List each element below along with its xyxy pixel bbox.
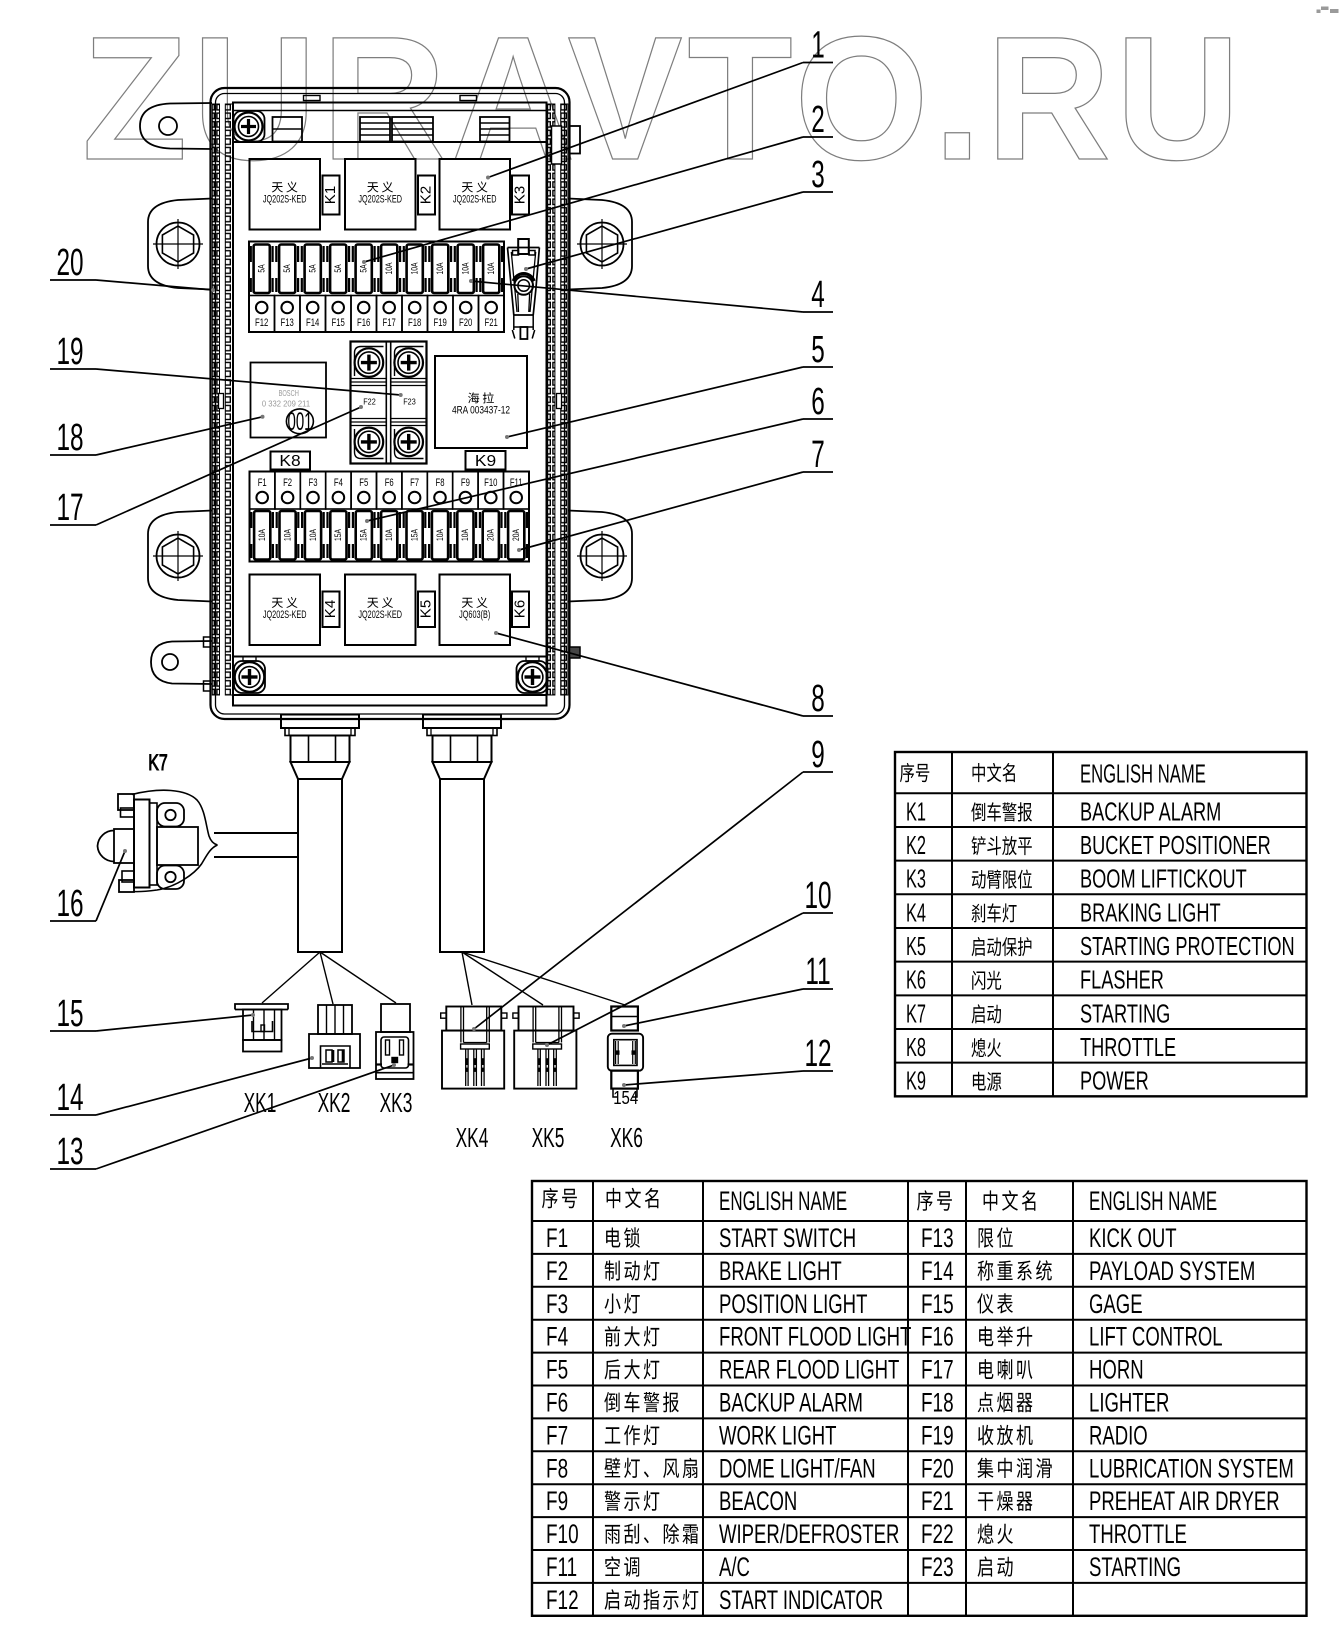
svg-text:F5: F5 — [359, 477, 368, 489]
svg-text:PAYLOAD SYSTEM: PAYLOAD SYSTEM — [1089, 1256, 1255, 1286]
svg-text:F10: F10 — [484, 477, 497, 489]
svg-text:XK4: XK4 — [456, 1122, 489, 1153]
svg-text:GAGE: GAGE — [1089, 1289, 1143, 1319]
svg-text:LIGHTER: LIGHTER — [1089, 1388, 1169, 1418]
svg-text:KICK OUT: KICK OUT — [1089, 1223, 1177, 1253]
svg-text:JQ603(B): JQ603(B) — [459, 609, 490, 621]
svg-text:BOSCH: BOSCH — [279, 388, 299, 398]
svg-text:F8: F8 — [436, 477, 445, 489]
svg-text:WIPER/DEFROSTER: WIPER/DEFROSTER — [719, 1519, 899, 1549]
svg-text:BACKUP ALARM: BACKUP ALARM — [719, 1388, 863, 1418]
svg-text:F20: F20 — [921, 1453, 954, 1483]
svg-text:K8: K8 — [279, 453, 300, 470]
svg-text:ENGLISH NAME: ENGLISH NAME — [719, 1186, 847, 1216]
svg-text:F13: F13 — [921, 1223, 954, 1253]
svg-text:15A: 15A — [409, 529, 419, 541]
svg-text:10A: 10A — [461, 263, 471, 275]
svg-text:F17: F17 — [921, 1355, 954, 1385]
svg-text:K5: K5 — [906, 931, 926, 961]
svg-text:4RA 003437-12: 4RA 003437-12 — [452, 405, 510, 417]
svg-text:F21: F21 — [485, 317, 498, 329]
svg-text:5A: 5A — [257, 264, 267, 272]
svg-text:K1: K1 — [322, 186, 339, 204]
svg-text:10A: 10A — [282, 529, 292, 541]
svg-text:F17: F17 — [383, 317, 396, 329]
svg-text:BRAKE LIGHT: BRAKE LIGHT — [719, 1256, 842, 1286]
svg-text:154: 154 — [613, 1088, 638, 1108]
svg-text:19: 19 — [56, 331, 83, 373]
svg-text:LIFT CONTROL: LIFT CONTROL — [1089, 1322, 1223, 1352]
svg-text:10A: 10A — [435, 263, 445, 275]
svg-text:K3: K3 — [906, 864, 926, 894]
svg-text:F14: F14 — [921, 1256, 954, 1286]
svg-text:F3: F3 — [309, 477, 318, 489]
svg-text:15A: 15A — [359, 529, 369, 541]
svg-text:F16: F16 — [921, 1322, 954, 1352]
svg-text:F19: F19 — [921, 1420, 954, 1450]
svg-text:11: 11 — [805, 951, 830, 993]
svg-text:FLASHER: FLASHER — [1080, 965, 1164, 995]
svg-text:DOME LIGHT/FAN: DOME LIGHT/FAN — [719, 1453, 876, 1483]
svg-text:F5: F5 — [546, 1355, 568, 1385]
svg-text:K4: K4 — [906, 897, 926, 927]
svg-text:BEACON: BEACON — [719, 1486, 797, 1516]
svg-text:JQ202S-KED: JQ202S-KED — [453, 194, 497, 206]
svg-text:K5: K5 — [418, 600, 435, 618]
svg-text:9: 9 — [811, 734, 825, 776]
svg-text:4: 4 — [811, 274, 825, 316]
svg-text:BOOM LIFTICKOUT: BOOM LIFTICKOUT — [1080, 864, 1247, 894]
svg-text:F12: F12 — [546, 1585, 579, 1615]
svg-text:K1: K1 — [906, 796, 926, 826]
svg-text:F4: F4 — [334, 477, 343, 489]
svg-text:10A: 10A — [410, 263, 420, 275]
svg-text:F14: F14 — [306, 317, 319, 329]
svg-text:F21: F21 — [921, 1486, 954, 1516]
svg-text:FRONT FLOOD LIGHT: FRONT FLOOD LIGHT — [719, 1322, 911, 1352]
svg-text:F2: F2 — [546, 1256, 568, 1286]
svg-text:2: 2 — [811, 99, 825, 141]
svg-text:10: 10 — [804, 875, 831, 917]
svg-text:XK3: XK3 — [380, 1087, 413, 1118]
svg-text:STARTING: STARTING — [1089, 1552, 1181, 1582]
svg-text:3: 3 — [811, 154, 825, 196]
svg-text:STARTING: STARTING — [1080, 998, 1170, 1028]
svg-text:10A: 10A — [486, 263, 496, 275]
svg-text:20: 20 — [56, 242, 83, 284]
svg-text:5A: 5A — [359, 264, 369, 272]
svg-text:K6: K6 — [512, 600, 529, 618]
svg-text:F18: F18 — [408, 317, 421, 329]
svg-text:REAR FLOOD LIGHT: REAR FLOOD LIGHT — [719, 1355, 899, 1385]
svg-text:10A: 10A — [435, 529, 445, 541]
svg-text:STARTING PROTECTION: STARTING PROTECTION — [1080, 931, 1295, 961]
svg-text:10A: 10A — [384, 529, 394, 541]
svg-text:K3: K3 — [512, 186, 529, 204]
svg-text:F15: F15 — [921, 1289, 954, 1319]
svg-text:F9: F9 — [546, 1486, 568, 1516]
svg-text:K7: K7 — [906, 998, 926, 1028]
svg-text:RADIO: RADIO — [1089, 1420, 1148, 1450]
svg-text:THROTTLE: THROTTLE — [1080, 1032, 1176, 1062]
svg-text:K6: K6 — [906, 965, 926, 995]
svg-text:F23: F23 — [921, 1552, 954, 1582]
svg-text:JQ202S-KED: JQ202S-KED — [263, 194, 307, 206]
svg-text:15: 15 — [56, 993, 83, 1035]
svg-text:1: 1 — [811, 25, 825, 67]
svg-text:5A: 5A — [282, 264, 292, 272]
svg-text:JQ202S-KED: JQ202S-KED — [358, 609, 402, 621]
svg-text:F4: F4 — [546, 1322, 568, 1352]
svg-text:HORN: HORN — [1089, 1355, 1144, 1385]
svg-text:001: 001 — [288, 408, 313, 436]
svg-text:K9: K9 — [475, 453, 496, 470]
svg-text:ENGLISH NAME: ENGLISH NAME — [1080, 759, 1206, 789]
svg-text:JQ202S-KED: JQ202S-KED — [358, 194, 402, 206]
svg-text:12: 12 — [804, 1033, 831, 1075]
svg-text:F2: F2 — [283, 477, 292, 489]
svg-text:K9: K9 — [906, 1066, 926, 1096]
svg-text:8: 8 — [811, 678, 825, 720]
svg-text:WORK LIGHT: WORK LIGHT — [719, 1420, 837, 1450]
svg-text:6: 6 — [811, 381, 825, 423]
svg-text:15A: 15A — [333, 529, 343, 541]
svg-text:F12: F12 — [255, 317, 268, 329]
svg-text:F3: F3 — [546, 1289, 568, 1319]
svg-text:F10: F10 — [546, 1519, 579, 1549]
svg-text:JQ202S-KED: JQ202S-KED — [263, 609, 307, 621]
svg-text:F6: F6 — [546, 1388, 568, 1418]
svg-text:10A: 10A — [308, 529, 318, 541]
svg-text:13: 13 — [56, 1131, 83, 1173]
svg-text:10A: 10A — [460, 529, 470, 541]
svg-text:10A: 10A — [384, 263, 394, 275]
svg-text:5: 5 — [811, 329, 825, 371]
svg-text:THROTTLE: THROTTLE — [1089, 1519, 1187, 1549]
svg-text:5A: 5A — [308, 264, 318, 272]
svg-text:20A: 20A — [486, 529, 496, 541]
svg-text:F15: F15 — [332, 317, 345, 329]
svg-text:F23: F23 — [403, 398, 416, 407]
svg-text:F8: F8 — [546, 1453, 568, 1483]
svg-text:PREHEAT AIR DRYER: PREHEAT AIR DRYER — [1089, 1486, 1280, 1516]
svg-text:F11: F11 — [546, 1552, 577, 1582]
svg-text:BRAKING LIGHT: BRAKING LIGHT — [1080, 897, 1221, 927]
svg-text:ENGLISH NAME: ENGLISH NAME — [1089, 1186, 1217, 1216]
svg-text:XK5: XK5 — [532, 1122, 565, 1153]
svg-text:F22: F22 — [921, 1519, 954, 1549]
svg-text:5A: 5A — [333, 264, 343, 272]
svg-text:LUBRICATION SYSTEM: LUBRICATION SYSTEM — [1089, 1453, 1294, 1483]
svg-text:F18: F18 — [921, 1388, 954, 1418]
svg-text:F22: F22 — [363, 398, 376, 407]
svg-text:XK2: XK2 — [318, 1087, 351, 1118]
svg-text:K2: K2 — [418, 186, 435, 204]
svg-text:START INDICATOR: START INDICATOR — [719, 1585, 883, 1615]
svg-text:K2: K2 — [906, 830, 926, 860]
svg-text:F7: F7 — [546, 1420, 568, 1450]
svg-text:A/C: A/C — [719, 1552, 750, 1582]
svg-text:16: 16 — [56, 883, 83, 925]
svg-text:14: 14 — [56, 1077, 83, 1119]
svg-text:K4: K4 — [322, 600, 339, 618]
svg-text:20A: 20A — [511, 529, 521, 541]
svg-text:BACKUP ALARM: BACKUP ALARM — [1080, 796, 1221, 826]
svg-text:F1: F1 — [546, 1223, 568, 1253]
svg-text:17: 17 — [56, 487, 83, 529]
svg-text:BUCKET POSITIONER: BUCKET POSITIONER — [1080, 830, 1271, 860]
svg-text:K7: K7 — [148, 750, 168, 775]
svg-text:F6: F6 — [385, 477, 394, 489]
svg-text:F1: F1 — [258, 477, 267, 489]
svg-text:ZURAVTO.RU: ZURAVTO.RU — [82, 1, 1245, 197]
svg-text:K8: K8 — [906, 1032, 926, 1062]
svg-text:START SWITCH: START SWITCH — [719, 1223, 856, 1253]
svg-text:F7: F7 — [410, 477, 419, 489]
svg-text:7: 7 — [811, 434, 825, 476]
svg-text:10A: 10A — [257, 529, 267, 541]
svg-text:18: 18 — [56, 417, 83, 459]
svg-text:XK6: XK6 — [610, 1122, 643, 1153]
svg-text:F16: F16 — [357, 317, 370, 329]
svg-text:XK1: XK1 — [244, 1087, 277, 1118]
svg-text:POWER: POWER — [1080, 1066, 1149, 1096]
svg-text:F19: F19 — [434, 317, 447, 329]
svg-text:F13: F13 — [281, 317, 294, 329]
svg-text:POSITION LIGHT: POSITION LIGHT — [719, 1289, 867, 1319]
svg-text:F20: F20 — [459, 317, 472, 329]
svg-text:F9: F9 — [461, 477, 470, 489]
